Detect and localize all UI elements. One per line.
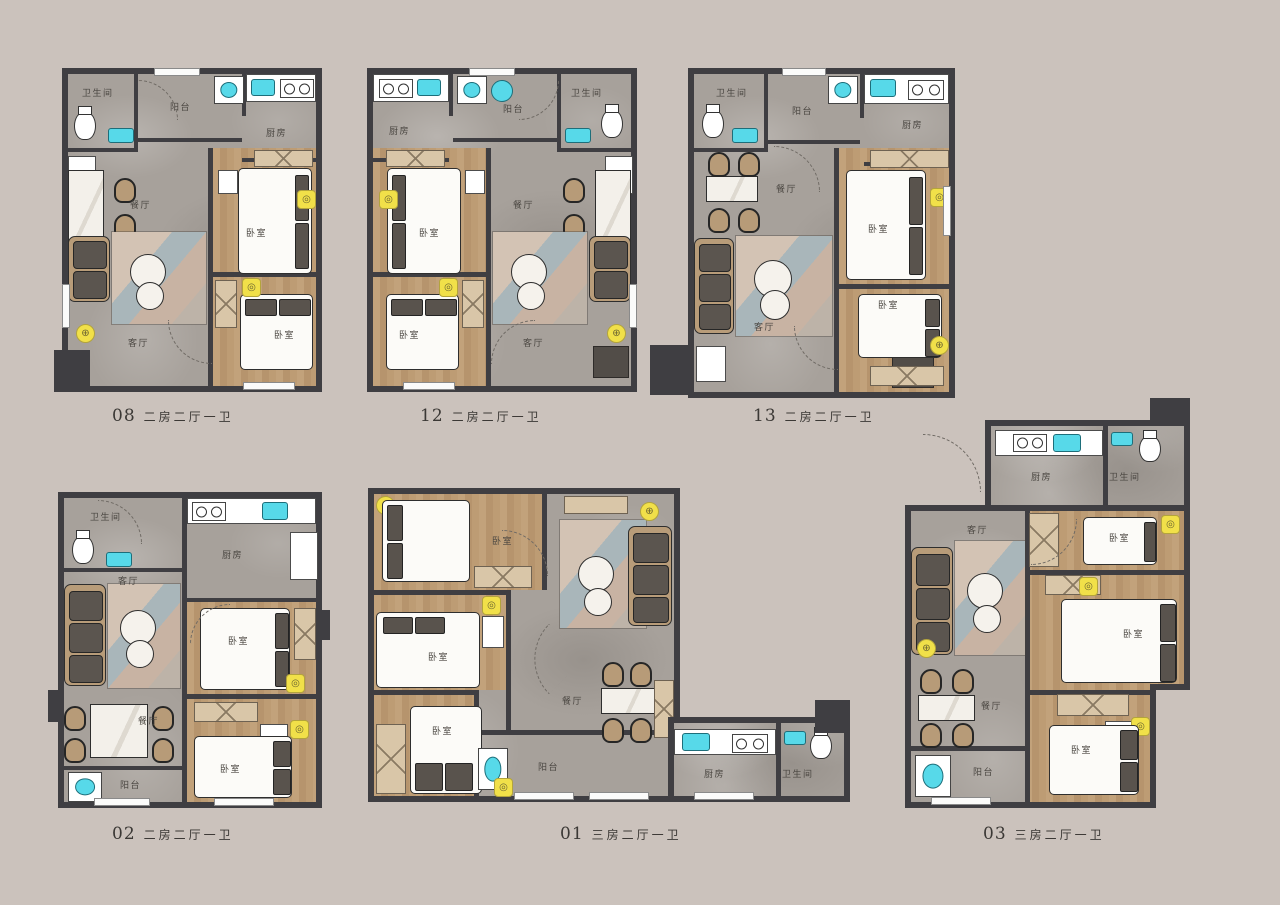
interior-wall bbox=[694, 148, 768, 152]
room-label: 卧室 bbox=[399, 332, 420, 341]
room-label: 厨房 bbox=[704, 771, 725, 780]
fridge bbox=[290, 532, 318, 580]
interior-wall bbox=[453, 138, 557, 142]
room-label: 卧室 bbox=[228, 638, 249, 647]
sofa bbox=[694, 238, 734, 334]
desk bbox=[482, 616, 504, 648]
target-icon: ⊕ bbox=[640, 502, 659, 521]
toilet bbox=[1139, 436, 1161, 462]
room-label: 厨房 bbox=[222, 552, 243, 561]
sofa-cushion bbox=[73, 271, 107, 299]
chair bbox=[708, 152, 730, 177]
chair bbox=[920, 669, 942, 694]
pillow bbox=[383, 617, 413, 634]
dining-table bbox=[68, 170, 104, 244]
interior-wall bbox=[776, 723, 781, 796]
lamp-icon: ◎ bbox=[379, 190, 398, 209]
structural-column bbox=[54, 350, 90, 392]
plan-caption-02: 02二房二厅一卫 bbox=[112, 824, 234, 844]
interior-wall bbox=[182, 498, 187, 802]
coffee-table bbox=[967, 573, 1003, 609]
plan-01-main-outline: ⊕ 卧室 客厅 ⊕ ◎ 卧室 卧室 bbox=[368, 488, 680, 802]
pillow bbox=[273, 741, 291, 767]
pillow bbox=[279, 299, 311, 316]
toilet bbox=[601, 110, 623, 138]
lamp-icon: ◎ bbox=[1079, 577, 1098, 596]
pillow bbox=[295, 223, 309, 269]
chair bbox=[64, 738, 86, 763]
floor-plan-01: ⊕ 卧室 客厅 ⊕ ◎ 卧室 卧室 bbox=[368, 488, 850, 802]
window bbox=[243, 382, 295, 390]
sofa-cushion bbox=[699, 304, 731, 330]
pillow bbox=[392, 223, 406, 269]
interior-wall bbox=[486, 148, 491, 386]
room-label: 卧室 bbox=[878, 302, 899, 311]
plan-caption-08: 08二房二厅一卫 bbox=[112, 406, 234, 426]
room-label: 卫生间 bbox=[782, 771, 814, 780]
coffee-table bbox=[584, 588, 612, 616]
sofa bbox=[64, 584, 106, 686]
room-label: 餐厅 bbox=[130, 202, 151, 211]
plan-number: 12 bbox=[420, 406, 444, 426]
door-swing bbox=[519, 80, 559, 120]
sofa-cushion bbox=[69, 655, 103, 683]
bed bbox=[387, 168, 461, 274]
lamp-icon: ◎ bbox=[494, 778, 513, 797]
interior-wall bbox=[374, 590, 511, 595]
sofa-cushion bbox=[594, 271, 628, 299]
round-basin bbox=[491, 80, 513, 102]
washing-machine-icon bbox=[214, 76, 244, 104]
lamp-icon: ◎ bbox=[439, 278, 458, 297]
plan-12-outline: 厨房 阳台 卫生间 餐厅 ⊕ 客厅 ◎ 卧室 bbox=[367, 68, 637, 392]
bathroom-sink bbox=[732, 128, 758, 143]
room-label: 阳台 bbox=[973, 769, 994, 778]
dining-table bbox=[601, 688, 655, 714]
window bbox=[62, 284, 70, 328]
target-icon: ⊕ bbox=[917, 639, 936, 658]
room-label: 卧室 bbox=[868, 226, 889, 235]
interior-wall bbox=[1103, 426, 1108, 505]
wardrobe bbox=[376, 724, 406, 794]
sofa-cushion bbox=[916, 588, 950, 620]
cabinet bbox=[564, 496, 628, 514]
room-label: 阳台 bbox=[538, 764, 559, 773]
sofa-cushion bbox=[69, 591, 103, 621]
pillow bbox=[1120, 730, 1138, 760]
door-swing bbox=[168, 320, 212, 364]
chair bbox=[738, 152, 760, 177]
pillow bbox=[245, 299, 277, 316]
pillow bbox=[445, 763, 473, 791]
bed bbox=[858, 294, 942, 358]
plan-03-wing-outline: 厨房 卫生间 bbox=[985, 420, 1190, 511]
storage-box bbox=[593, 346, 629, 378]
bathroom-sink bbox=[108, 128, 134, 143]
floor-plan-02: 卫生间 厨房 客厅 ◎ 卧室 餐厅 阳台 ◎ bbox=[58, 492, 322, 808]
stove-icon bbox=[732, 734, 768, 753]
wardrobe bbox=[194, 702, 258, 722]
room-label: 卧室 bbox=[274, 332, 295, 341]
door-swing bbox=[491, 320, 535, 364]
lamp-icon: ◎ bbox=[286, 674, 305, 693]
room-label: 卧室 bbox=[428, 654, 449, 663]
pillow bbox=[925, 299, 940, 327]
pillow bbox=[909, 177, 923, 225]
room-label: 餐厅 bbox=[138, 718, 159, 727]
window bbox=[94, 798, 150, 806]
wardrobe bbox=[386, 150, 445, 167]
coffee-table bbox=[136, 282, 164, 310]
door-swing bbox=[98, 500, 142, 544]
window bbox=[403, 382, 455, 390]
plan-number: 02 bbox=[112, 824, 136, 844]
window bbox=[931, 797, 991, 805]
room-label: 厨房 bbox=[902, 122, 923, 131]
window bbox=[694, 792, 754, 800]
sofa-cushion bbox=[633, 597, 669, 623]
interior-wall bbox=[768, 140, 860, 144]
chair bbox=[563, 178, 585, 203]
washing-machine-icon bbox=[828, 76, 858, 104]
sofa-cushion bbox=[916, 554, 950, 586]
chair bbox=[64, 706, 86, 731]
kitchen-sink bbox=[251, 79, 275, 96]
chair bbox=[152, 738, 174, 763]
plan-type: 二房二厅一卫 bbox=[144, 410, 234, 424]
plan-caption-13: 13二房二厅一卫 bbox=[753, 406, 875, 426]
interior-wall bbox=[64, 766, 182, 770]
chair bbox=[738, 208, 760, 233]
coffee-table bbox=[126, 640, 154, 668]
interior-wall bbox=[449, 74, 453, 116]
stove-icon bbox=[192, 502, 226, 521]
room-label: 厨房 bbox=[1031, 474, 1052, 483]
interior-wall bbox=[506, 595, 511, 735]
stove-icon bbox=[908, 80, 944, 100]
washing-machine-icon bbox=[457, 76, 487, 104]
floor-plan-08: 卫生间 阳台 厨房 餐厅 ⊕ 客厅 ◎ 卧室 ◎ bbox=[62, 68, 322, 392]
room-label: 卫生间 bbox=[1109, 474, 1141, 483]
stove-icon bbox=[280, 79, 314, 98]
coffee-table bbox=[973, 605, 1001, 633]
bathroom-sink bbox=[565, 128, 591, 143]
sofa-cushion bbox=[594, 241, 628, 269]
pillow bbox=[275, 613, 289, 649]
window bbox=[469, 68, 515, 76]
chair bbox=[114, 178, 136, 203]
room-label: 卧室 bbox=[432, 728, 453, 737]
bed bbox=[1049, 725, 1139, 795]
floor-plan-03: 厨房 卫生间 客厅 ⊕ 卧室 ◎ ◎ 卧室 bbox=[905, 398, 1190, 808]
room-label: 客厅 bbox=[118, 578, 139, 587]
target-icon: ⊕ bbox=[607, 324, 626, 343]
wardrobe bbox=[215, 280, 237, 328]
plan-number: 08 bbox=[112, 406, 136, 426]
pillow bbox=[415, 617, 445, 634]
door-swing bbox=[923, 434, 981, 492]
plan-caption-12: 12二房二厅一卫 bbox=[420, 406, 542, 426]
lamp-icon: ◎ bbox=[482, 596, 501, 615]
interior-wall bbox=[68, 148, 138, 152]
kitchen-sink bbox=[1053, 434, 1081, 452]
room-label: 卫生间 bbox=[571, 90, 603, 99]
chair bbox=[920, 723, 942, 748]
structural-column bbox=[815, 700, 850, 733]
plan-type: 二房二厅一卫 bbox=[144, 828, 234, 842]
room-label: 卧室 bbox=[419, 230, 440, 239]
toilet bbox=[72, 536, 94, 564]
coffee-table bbox=[760, 290, 790, 320]
plan-number: 13 bbox=[753, 406, 777, 426]
sofa bbox=[68, 236, 110, 302]
room-label: 卧室 bbox=[1123, 631, 1144, 640]
interior-wall bbox=[187, 598, 316, 602]
structural-column bbox=[316, 610, 330, 640]
interior-wall bbox=[64, 568, 182, 572]
bed bbox=[382, 500, 470, 582]
plan-type: 三房二厅一卫 bbox=[1015, 828, 1105, 842]
pillow bbox=[909, 227, 923, 275]
bathroom-sink bbox=[784, 731, 806, 745]
bed bbox=[194, 736, 292, 798]
room-label: 客厅 bbox=[128, 340, 149, 349]
room-label: 卫生间 bbox=[82, 90, 114, 99]
wardrobe bbox=[294, 608, 316, 660]
structural-column bbox=[48, 690, 60, 722]
sofa-cushion bbox=[73, 241, 107, 269]
bed bbox=[238, 168, 312, 274]
plan-type: 三房二厅一卫 bbox=[592, 828, 682, 842]
coffee-table bbox=[578, 556, 614, 592]
bathroom-sink bbox=[1111, 432, 1133, 446]
chair bbox=[630, 662, 652, 687]
plan-type: 二房二厅一卫 bbox=[785, 410, 875, 424]
stove-icon bbox=[1013, 434, 1047, 452]
wardrobe bbox=[254, 150, 313, 167]
chair bbox=[708, 208, 730, 233]
kitchen-sink bbox=[870, 79, 896, 97]
room-label: 厨房 bbox=[389, 128, 410, 137]
dining-table bbox=[706, 176, 758, 202]
interior-wall bbox=[138, 138, 242, 142]
plan-caption-03: 03三房二厅一卫 bbox=[983, 824, 1105, 844]
chair bbox=[602, 718, 624, 743]
wardrobe bbox=[870, 366, 944, 386]
pillow bbox=[415, 763, 443, 791]
plan-03-main-outline: 客厅 ⊕ 卧室 ◎ ◎ 卧室 ◎ 卧室 bbox=[905, 505, 1190, 808]
dining-table bbox=[595, 170, 631, 244]
window bbox=[514, 792, 574, 800]
door-swing bbox=[774, 146, 820, 192]
interior-wall bbox=[1150, 690, 1156, 806]
toilet bbox=[702, 110, 724, 138]
lamp-icon: ◎ bbox=[1161, 515, 1180, 534]
sofa bbox=[589, 236, 631, 302]
bed bbox=[386, 294, 459, 370]
window bbox=[214, 798, 274, 806]
washing-machine-icon bbox=[915, 755, 951, 797]
pillow bbox=[387, 543, 403, 579]
plan-number: 03 bbox=[983, 824, 1007, 844]
room-label: 餐厅 bbox=[562, 698, 583, 707]
interior-wall bbox=[1150, 684, 1190, 690]
chair bbox=[602, 662, 624, 687]
chair bbox=[952, 723, 974, 748]
room-label: 餐厅 bbox=[981, 703, 1002, 712]
door-swing bbox=[138, 80, 178, 120]
wardrobe bbox=[462, 280, 484, 328]
sofa-cushion bbox=[699, 244, 731, 272]
kitchen-sink bbox=[682, 733, 710, 751]
side-table bbox=[696, 346, 726, 382]
door-swing bbox=[794, 326, 838, 370]
coffee-table bbox=[517, 282, 545, 310]
pillow bbox=[273, 769, 291, 795]
bathroom-sink bbox=[106, 552, 132, 567]
nightstand bbox=[218, 170, 238, 194]
sofa-cushion bbox=[699, 274, 731, 302]
room-label: 卫生间 bbox=[716, 90, 748, 99]
plan-type: 二房二厅一卫 bbox=[452, 410, 542, 424]
wardrobe bbox=[870, 150, 949, 168]
kitchen-counter bbox=[995, 430, 1103, 456]
stove-icon bbox=[379, 79, 413, 98]
lamp-icon: ◎ bbox=[297, 190, 316, 209]
plan-caption-01: 01三房二厅一卫 bbox=[560, 824, 682, 844]
interior-wall bbox=[557, 148, 631, 152]
window bbox=[589, 792, 649, 800]
wardrobe bbox=[1057, 694, 1129, 716]
window bbox=[629, 284, 637, 328]
window bbox=[154, 68, 200, 76]
bed bbox=[1061, 599, 1177, 683]
interior-wall bbox=[839, 284, 949, 289]
target-icon: ⊕ bbox=[930, 336, 949, 355]
room-label: 客厅 bbox=[754, 324, 775, 333]
toilet bbox=[810, 733, 832, 759]
room-label: 卧室 bbox=[1071, 747, 1092, 756]
room-label: 卧室 bbox=[1109, 535, 1130, 544]
pillow bbox=[391, 299, 423, 316]
window bbox=[943, 186, 951, 236]
kitchen-sink bbox=[262, 502, 288, 520]
sofa-cushion bbox=[69, 623, 103, 653]
room-label: 阳台 bbox=[120, 782, 141, 791]
plan-number: 01 bbox=[560, 824, 584, 844]
plan-cutout bbox=[1156, 690, 1190, 808]
plan-02-outline: 卫生间 厨房 客厅 ◎ 卧室 餐厅 阳台 ◎ bbox=[58, 492, 322, 808]
chair bbox=[630, 718, 652, 743]
toilet bbox=[74, 112, 96, 140]
bed bbox=[410, 706, 482, 794]
pillow bbox=[1160, 644, 1176, 682]
window bbox=[782, 68, 826, 76]
room-label: 卧室 bbox=[220, 766, 241, 775]
lamp-icon: ◎ bbox=[242, 278, 261, 297]
door-swing bbox=[514, 624, 585, 695]
sofa bbox=[911, 547, 953, 655]
room-label: 厨房 bbox=[266, 130, 287, 139]
pillow bbox=[1120, 762, 1138, 792]
sofa bbox=[628, 526, 672, 626]
dining-table bbox=[918, 695, 975, 721]
plan-08-outline: 卫生间 阳台 厨房 餐厅 ⊕ 客厅 ◎ 卧室 ◎ bbox=[62, 68, 322, 392]
nightstand bbox=[465, 170, 485, 194]
floor-plan-12: 厨房 阳台 卫生间 餐厅 ⊕ 客厅 ◎ 卧室 bbox=[367, 68, 637, 392]
lamp-icon: ◎ bbox=[290, 720, 309, 739]
pillow bbox=[1144, 522, 1156, 562]
target-icon: ⊕ bbox=[76, 324, 95, 343]
dining-table bbox=[90, 704, 148, 758]
sofa-cushion bbox=[633, 565, 669, 595]
kitchen-sink bbox=[417, 79, 441, 96]
pillow bbox=[425, 299, 457, 316]
structural-column bbox=[650, 345, 690, 395]
interior-wall bbox=[374, 690, 479, 695]
room-label: 客厅 bbox=[967, 527, 988, 536]
sofa-cushion bbox=[633, 533, 669, 563]
pillow bbox=[387, 505, 403, 541]
floor-plan-13: 卫生间 阳台 厨房 餐厅 客厅 ◎ 卧室 bbox=[688, 68, 955, 398]
room-label: 卧室 bbox=[246, 230, 267, 239]
chair bbox=[952, 669, 974, 694]
room-label: 阳台 bbox=[792, 108, 813, 117]
room-label: 餐厅 bbox=[513, 202, 534, 211]
interior-wall bbox=[187, 694, 316, 699]
bed bbox=[376, 612, 480, 688]
pillow bbox=[1160, 604, 1176, 642]
plan-13-outline: 卫生间 阳台 厨房 餐厅 客厅 ◎ 卧室 bbox=[688, 68, 955, 398]
